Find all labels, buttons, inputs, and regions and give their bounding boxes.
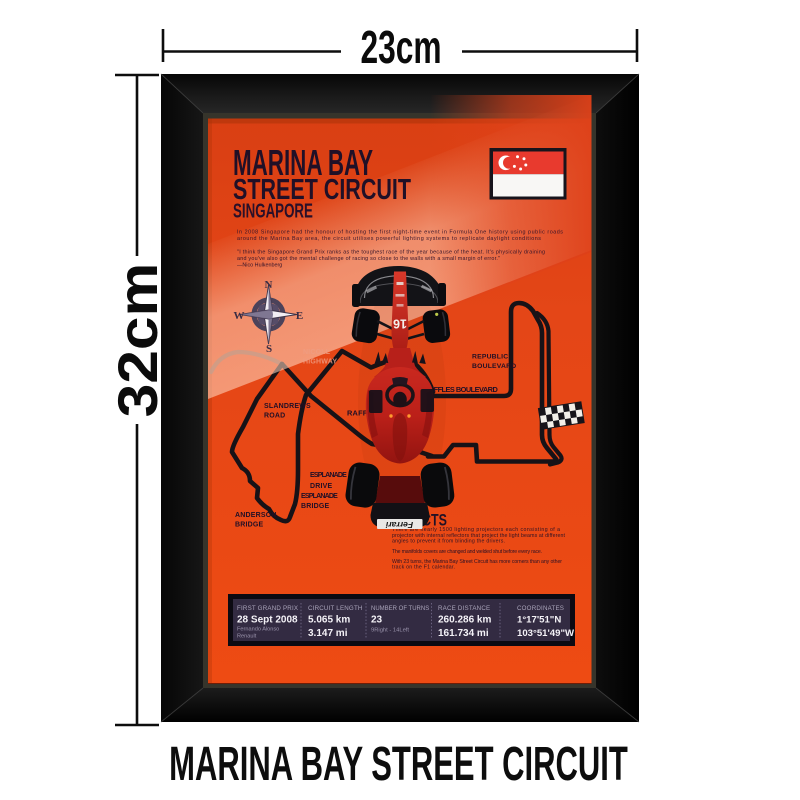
- svg-text:W: W: [234, 310, 245, 322]
- svg-text:E: E: [296, 310, 303, 322]
- svg-text:16: 16: [393, 317, 407, 331]
- svg-text:and you've also got the mental: and you've also got the mental challenge…: [237, 256, 500, 262]
- svg-text:BRIDGE: BRIDGE: [235, 522, 264, 529]
- svg-text:SLANDREWS: SLANDREWS: [264, 403, 311, 410]
- svg-text:3.147 mi: 3.147 mi: [308, 628, 348, 639]
- svg-text:28 Sept 2008: 28 Sept 2008: [237, 615, 298, 626]
- svg-text:REPUBLIC: REPUBLIC: [472, 354, 508, 361]
- svg-text:161.734 mi: 161.734 mi: [438, 628, 489, 639]
- svg-text:S: S: [266, 343, 272, 355]
- svg-text:Renault: Renault: [237, 634, 257, 640]
- svg-text:SINGAPORE: SINGAPORE: [233, 200, 313, 222]
- svg-text:MARINA BAY STREET CIRCUIT: MARINA BAY STREET CIRCUIT: [169, 736, 628, 791]
- svg-text:260.286 km: 260.286 km: [438, 615, 491, 626]
- svg-text:N: N: [265, 279, 273, 291]
- svg-text:ESPLANADE: ESPLANADE: [310, 472, 347, 479]
- svg-text:23: 23: [371, 615, 383, 626]
- svg-text:Ferrari: Ferrari: [385, 520, 413, 530]
- svg-text:The manifolds covers are chang: The manifolds covers are changed and wel…: [392, 549, 542, 555]
- svg-text:32cm: 32cm: [107, 263, 169, 418]
- svg-text:Fernando Alonso: Fernando Alonso: [237, 627, 279, 633]
- svg-text:RACE DISTANCE: RACE DISTANCE: [438, 605, 490, 612]
- svg-text:track on the F1 calendar.: track on the F1 calendar.: [392, 565, 455, 571]
- svg-text:23cm: 23cm: [360, 22, 441, 73]
- svg-text:COORDINATES: COORDINATES: [517, 605, 564, 612]
- svg-text:5.065 km: 5.065 km: [308, 615, 350, 626]
- svg-text:BRIDGE: BRIDGE: [301, 503, 330, 510]
- svg-text:9Right - 14Left: 9Right - 14Left: [371, 628, 409, 634]
- svg-text:1°17'51"N: 1°17'51"N: [517, 615, 561, 626]
- svg-text:103°51'49"W: 103°51'49"W: [517, 628, 575, 639]
- svg-text:NICOLL: NICOLL: [303, 349, 331, 356]
- svg-text:"I think the Singapore Grand P: "I think the Singapore Grand Prix ranks …: [237, 250, 545, 256]
- svg-text:NUMBER OF TURNS: NUMBER OF TURNS: [371, 606, 429, 612]
- svg-text:—Nico Hulkenberg: —Nico Hulkenberg: [237, 263, 282, 269]
- svg-text:In 2008 Singapore had the hono: In 2008 Singapore had the honour of host…: [237, 230, 563, 236]
- svg-text:ANDERSON: ANDERSON: [235, 512, 277, 519]
- svg-text:CIRCUIT LENGTH: CIRCUIT LENGTH: [308, 605, 363, 612]
- svg-text:angles to prevent it from blin: angles to prevent it from blinding the d…: [392, 539, 505, 545]
- svg-text:HIGHWAY: HIGHWAY: [303, 359, 337, 366]
- svg-text:around the Marina Bay area, th: around the Marina Bay area, the circuit …: [237, 236, 541, 242]
- svg-text:FIRST GRAND PRIX: FIRST GRAND PRIX: [237, 605, 298, 612]
- svg-text:BOULEVARD: BOULEVARD: [472, 363, 516, 370]
- svg-text:ESPLANADE: ESPLANADE: [301, 493, 338, 500]
- svg-text:DRIVE: DRIVE: [310, 483, 333, 490]
- svg-text:ROAD: ROAD: [264, 413, 285, 420]
